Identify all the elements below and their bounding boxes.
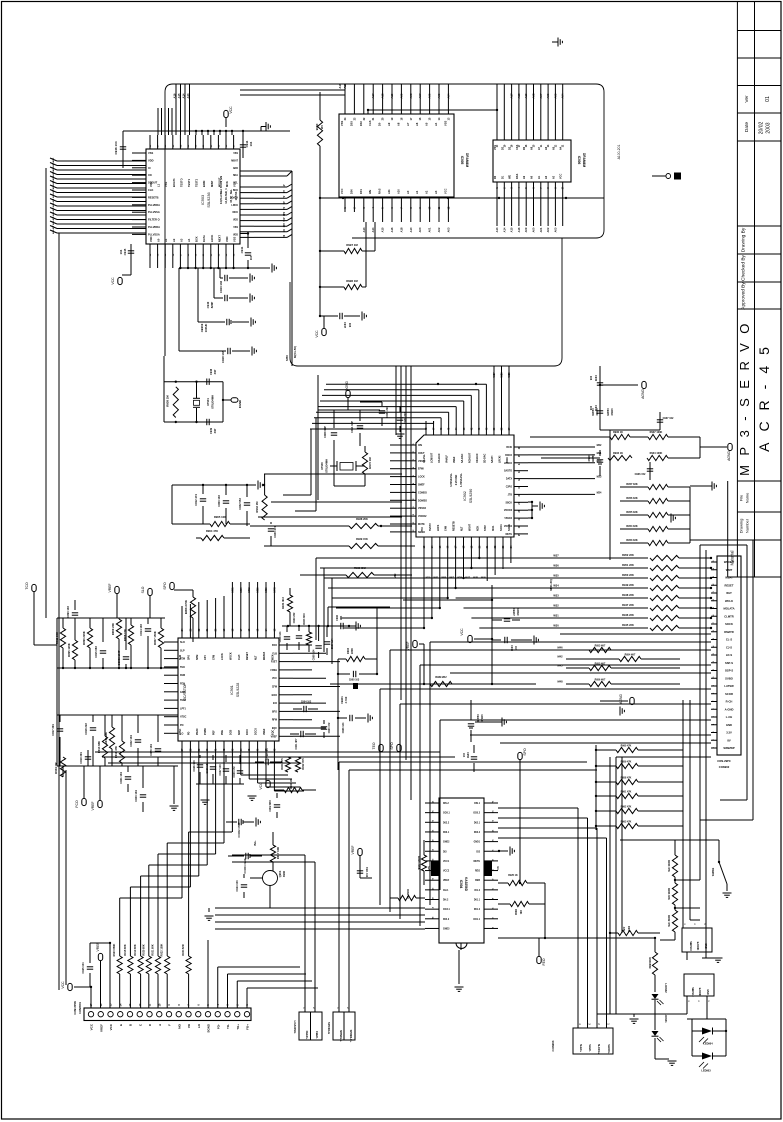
svg-text:MDATA: MDATA xyxy=(263,651,266,660)
svg-text:VDD: VDD xyxy=(233,233,238,236)
svg-text:C927 103: C927 103 xyxy=(218,764,222,776)
svg-text:VCC: VCC xyxy=(460,628,464,636)
svg-text:R940: R940 xyxy=(627,926,630,933)
svg-text:SPO: SPO xyxy=(390,742,394,750)
svg-text:W37: W37 xyxy=(553,554,559,558)
svg-text:VREF: VREF xyxy=(263,728,266,735)
svg-text:OO1.1: OO1.1 xyxy=(473,919,480,921)
svg-text:D04.2: D04.2 xyxy=(443,918,450,921)
svg-text:R947 22K: R947 22K xyxy=(622,603,634,607)
svg-text:IC904: IC904 xyxy=(459,880,463,889)
svg-text:D02.2: D02.2 xyxy=(443,822,450,824)
svg-text:SSP-S: SSP-S xyxy=(725,661,733,665)
svg-text:W01: W01 xyxy=(433,577,439,580)
svg-text:A16: A16 xyxy=(517,227,521,232)
svg-text:104: 104 xyxy=(589,376,593,381)
svg-text:C907 104: C907 104 xyxy=(331,638,334,649)
svg-text:LD-S: LD-S xyxy=(726,653,732,657)
svg-text:8V: 8V xyxy=(727,738,730,742)
svg-text:VCC: VCC xyxy=(340,188,344,194)
svg-text:CC903 104F: CC903 104F xyxy=(117,650,121,666)
svg-text:R906 270K: R906 270K xyxy=(184,600,188,614)
svg-text:CL-S: CL-S xyxy=(726,638,732,642)
svg-text:C906 104: C906 104 xyxy=(342,722,345,733)
svg-text:M48: M48 xyxy=(557,680,563,684)
svg-text:100UF: 100UF xyxy=(204,324,208,333)
svg-text:TR-: TR- xyxy=(226,1024,230,1029)
svg-text:KA9258D: KA9258D xyxy=(464,877,468,892)
svg-text:VCC: VCC xyxy=(229,106,233,114)
svg-text:104: 104 xyxy=(249,141,253,146)
svg-text:Number: Number xyxy=(745,518,750,533)
svg-text:OSP-S: OSP-S xyxy=(725,669,734,673)
svg-text:SLDRG-: SLDRG- xyxy=(607,1044,610,1054)
svg-text:C903 472: C903 472 xyxy=(328,722,331,733)
svg-text:R934 100K: R934 100K xyxy=(650,452,663,455)
svg-text:SENS10: SENS10 xyxy=(691,987,694,997)
svg-text:SCL: SCL xyxy=(233,182,238,185)
svg-text:BOAT1: BOAT1 xyxy=(172,178,176,187)
svg-text:820P: 820P xyxy=(210,302,214,309)
svg-text:D03.2: D03.2 xyxy=(474,832,481,834)
svg-text:104: 104 xyxy=(340,615,343,620)
svg-text:R918 68K: R918 68K xyxy=(124,944,127,955)
svg-text:C924 103: C924 103 xyxy=(235,880,239,892)
svg-text:R996 1M: R996 1M xyxy=(346,279,358,283)
svg-text:1.VSSA-PLL: 1.VSSA-PLL xyxy=(460,473,463,487)
svg-text:SLDRG+: SLDRG+ xyxy=(597,1044,600,1055)
svg-text:R956 4K7: R956 4K7 xyxy=(595,679,606,682)
svg-text:A02: A02 xyxy=(437,227,441,232)
svg-text:220K: 220K xyxy=(351,648,354,654)
svg-text:ISO1: ISO1 xyxy=(492,525,495,531)
svg-text:A17: A17 xyxy=(371,93,375,98)
svg-text:RESET: RESET xyxy=(246,651,249,660)
svg-text:C937 102: C937 102 xyxy=(663,417,674,420)
svg-text:VCC: VCC xyxy=(272,677,277,680)
svg-text:AD0: AD0 xyxy=(52,157,55,162)
svg-text:A3: A3 xyxy=(179,238,183,242)
svg-text:A100-201: A100-201 xyxy=(617,145,621,160)
svg-text:RFM: RFM xyxy=(272,719,277,722)
svg-text:C915 683: C915 683 xyxy=(94,646,98,658)
svg-text:R957 33K: R957 33K xyxy=(626,483,637,486)
svg-text:TEM: TEM xyxy=(180,658,185,661)
svg-text:D03.1: D03.1 xyxy=(443,832,450,834)
svg-text:GND: GND xyxy=(180,691,186,694)
svg-text:C933 474: C933 474 xyxy=(273,526,277,538)
svg-text:NEXT: NEXT xyxy=(217,235,221,242)
svg-text:AD3: AD3 xyxy=(52,171,55,176)
svg-text:MUTE: MUTE xyxy=(418,523,425,526)
svg-text:R902: R902 xyxy=(347,647,350,654)
svg-text:SUBO: SUBO xyxy=(725,676,733,680)
svg-text:MBAT: MBAT xyxy=(231,159,238,162)
svg-text:A4: A4 xyxy=(187,238,191,242)
svg-text:MCK: MCK xyxy=(225,181,229,187)
svg-text:AD2: AD2 xyxy=(52,166,55,171)
svg-text:CLVI: CLVI xyxy=(238,654,241,660)
svg-text:R924 82R: R924 82R xyxy=(182,944,185,955)
svg-text:SGND: SGND xyxy=(207,1023,211,1033)
svg-text:ATSC: ATSC xyxy=(179,728,182,735)
svg-text:IC905: IC905 xyxy=(460,156,464,165)
svg-text:XIN: XIN xyxy=(418,444,422,447)
svg-text:R933 1K: R933 1K xyxy=(613,452,623,455)
svg-text:A19: A19 xyxy=(524,93,528,98)
svg-text:CLMTR: CLMTR xyxy=(724,614,733,618)
svg-text:Drawing: Drawing xyxy=(739,519,744,534)
svg-text:BA+: BA+ xyxy=(254,840,257,846)
svg-text:A18: A18 xyxy=(517,93,521,98)
svg-text:R954 33K: R954 33K xyxy=(626,525,637,528)
svg-text:A11: A11 xyxy=(387,189,391,194)
svg-text:DMATR: DMATR xyxy=(724,630,734,634)
svg-text:VCC: VCC xyxy=(315,330,319,338)
svg-text:VHALF: VHALF xyxy=(446,454,449,463)
svg-text:DCB: DCB xyxy=(229,730,232,735)
svg-text:FSET: FSET xyxy=(271,661,278,664)
svg-text:R926 200K: R926 200K xyxy=(417,856,421,870)
svg-text:SLED-: SLED- xyxy=(588,1044,591,1052)
svg-text:R915 68K: R915 68K xyxy=(104,732,108,744)
svg-text:C950: C950 xyxy=(466,752,469,759)
svg-text:RESETB: RESETB xyxy=(453,521,456,531)
svg-text:TESTV: TESTV xyxy=(429,523,432,531)
svg-text:SPO: SPO xyxy=(523,748,527,756)
svg-text:TEST1: TEST1 xyxy=(187,178,191,187)
svg-text:C925 104: C925 104 xyxy=(81,962,85,974)
svg-text:M50: M50 xyxy=(285,355,289,361)
svg-text:FO+: FO+ xyxy=(246,1024,250,1030)
svg-text:AD7: AD7 xyxy=(52,189,55,194)
svg-text:20/02: 20/02 xyxy=(759,122,765,135)
svg-text:R995 120K: R995 120K xyxy=(67,643,71,657)
svg-text:R994: R994 xyxy=(514,909,517,915)
svg-text:VSS: VSS xyxy=(340,121,344,126)
svg-text:AD4: AD4 xyxy=(52,175,55,180)
svg-text:E: E xyxy=(119,1024,123,1026)
svg-text:4.7UF: 4.7UF xyxy=(345,696,348,703)
svg-text:XOUT: XOUT xyxy=(418,452,425,455)
svg-text:Ver: Ver xyxy=(744,95,750,103)
svg-text:C947: C947 xyxy=(343,322,347,329)
svg-text:W36: W36 xyxy=(553,564,559,568)
svg-text:LOCK: LOCK xyxy=(418,476,425,479)
svg-text:RCHOUT: RCHOUT xyxy=(468,452,471,463)
svg-text:A14: A14 xyxy=(502,227,506,232)
svg-text:2.VCONF: 2.VCONF xyxy=(455,474,458,485)
svg-text:PLLVSSA: PLLVSSA xyxy=(148,232,160,236)
svg-text:JTB: JTB xyxy=(508,494,513,496)
svg-text:OH.1: OH.1 xyxy=(443,890,449,892)
svg-text:CFM: CFM xyxy=(272,686,277,689)
svg-text:XO: XO xyxy=(148,173,152,177)
svg-text:XT901: XT901 xyxy=(206,398,210,406)
svg-text:A1: A1 xyxy=(415,190,419,194)
svg-text:DOMSO: DOMSO xyxy=(418,499,427,502)
svg-text:WE: WE xyxy=(509,175,512,179)
svg-text:WE: WE xyxy=(368,190,372,194)
svg-text:C936 152: C936 152 xyxy=(635,473,646,476)
svg-text:EOO: EOO xyxy=(272,694,277,697)
svg-text:W48: W48 xyxy=(473,577,479,580)
svg-text:C902 8P2: C902 8P2 xyxy=(268,800,272,812)
svg-text:VREF: VREF xyxy=(99,1024,103,1032)
svg-text:R923 650K: R923 650K xyxy=(113,943,116,956)
svg-text:A5: A5 xyxy=(425,122,429,126)
svg-text:A3: A3 xyxy=(434,190,438,194)
svg-text:PEF: PEF xyxy=(213,730,216,735)
svg-text:CON902: CON902 xyxy=(719,765,730,769)
svg-text:CON-29PC: CON-29PC xyxy=(717,759,731,763)
svg-text:C949: C949 xyxy=(510,645,513,652)
svg-text:C945: C945 xyxy=(123,248,127,255)
svg-text:RAS: RAS xyxy=(378,188,382,194)
svg-text:C910 104: C910 104 xyxy=(279,631,282,642)
svg-text:R954 4K7: R954 4K7 xyxy=(625,654,636,657)
svg-text:R942 47K: R942 47K xyxy=(667,915,671,927)
svg-text:EQC: EQC xyxy=(272,727,277,730)
svg-text:VCC: VCC xyxy=(111,277,115,285)
svg-text:R907 150K: R907 150K xyxy=(153,631,157,645)
svg-text:A4: A4 xyxy=(434,122,438,126)
svg-text:A6: A6 xyxy=(415,122,419,126)
svg-text:R936 1K: R936 1K xyxy=(613,431,623,434)
svg-text:DATA: DATA xyxy=(202,235,206,242)
svg-text:VDD: VDD xyxy=(225,236,229,242)
svg-text:A10: A10 xyxy=(409,227,413,232)
svg-text:W30: W30 xyxy=(553,624,559,628)
svg-text:R944 47K: R944 47K xyxy=(667,860,671,872)
svg-text:OO5.1: OO5.1 xyxy=(443,813,450,815)
svg-text:TESTO: TESTO xyxy=(179,178,183,187)
svg-text:R919 68K: R919 68K xyxy=(134,944,137,955)
svg-text:M24: M24 xyxy=(597,491,602,494)
svg-text:C948 103: C948 103 xyxy=(221,350,225,363)
svg-text:W47: W47 xyxy=(465,577,471,580)
svg-text:R953 4K7: R953 4K7 xyxy=(595,645,606,648)
svg-text:A11: A11 xyxy=(282,218,285,223)
svg-text:M23: M23 xyxy=(597,476,602,479)
svg-text:A9: A9 xyxy=(387,122,391,126)
svg-text:GND1: GND1 xyxy=(474,842,481,844)
svg-text:WLT: WLT xyxy=(726,591,732,595)
svg-text:SDA: SDA xyxy=(233,174,238,177)
svg-text:VSS: VSS xyxy=(443,121,447,126)
svg-text:SPM: SPM xyxy=(196,655,199,660)
svg-text:SOCK: SOCK xyxy=(725,622,733,626)
svg-text:R903 3K9: R903 3K9 xyxy=(303,613,306,625)
svg-text:G2: G2 xyxy=(427,866,431,870)
svg-text:LRCK: LRCK xyxy=(231,204,238,207)
svg-text:A06: A06 xyxy=(546,93,550,98)
svg-text:SLO: SLO xyxy=(180,641,185,644)
svg-text:FEO: FEO xyxy=(542,958,546,965)
svg-text:M19: M19 xyxy=(426,577,431,580)
svg-text:FEED+: FEED+ xyxy=(305,1031,309,1040)
svg-text:FLB: FLB xyxy=(272,652,277,655)
svg-text:C990: C990 xyxy=(336,614,339,621)
svg-text:A2: A2 xyxy=(425,190,429,194)
svg-text:R932 1M: R932 1M xyxy=(255,501,259,513)
svg-text:MP3-SERVO: MP3-SERVO xyxy=(737,314,752,476)
svg-text:VSS: VSS xyxy=(233,237,237,242)
svg-text:LCMOUT: LCMOUT xyxy=(431,452,434,463)
svg-text:2003: 2003 xyxy=(766,122,772,133)
svg-text:WCLK: WCLK xyxy=(725,599,733,603)
svg-text:OD-DAC: OD-DAC xyxy=(476,453,479,463)
svg-text:VCC: VCC xyxy=(443,188,447,194)
svg-text:M(01-50): M(01-50) xyxy=(293,346,297,358)
svg-text:VSS: VSS xyxy=(164,182,168,187)
svg-text:RAS: RAS xyxy=(516,173,519,179)
svg-text:AGND: AGND xyxy=(619,694,623,704)
svg-text:ASY: ASY xyxy=(204,655,207,660)
svg-text:R943 10K: R943 10K xyxy=(667,888,671,900)
svg-text:R931 3K3: R931 3K3 xyxy=(281,597,285,609)
svg-text:A09: A09 xyxy=(399,93,403,98)
svg-text:VDD: VDD xyxy=(148,158,154,162)
svg-text:DGND: DGND xyxy=(238,400,242,408)
svg-text:VREF: VREF xyxy=(351,845,355,854)
svg-text:C4M: C4M xyxy=(445,526,448,531)
svg-text:104: 104 xyxy=(514,646,517,651)
svg-text:A10: A10 xyxy=(338,83,342,89)
svg-text:GND3: GND3 xyxy=(443,928,450,930)
svg-text:C939: C939 xyxy=(209,427,213,434)
svg-text:CE909: CE909 xyxy=(591,408,594,416)
svg-text:VSS: VSS xyxy=(233,226,238,229)
svg-text:R-CH: R-CH xyxy=(726,700,733,704)
svg-text:R901 7K5: R901 7K5 xyxy=(281,758,284,770)
svg-text:W35: W35 xyxy=(457,577,463,580)
svg-text:D02.1: D02.1 xyxy=(474,822,481,824)
svg-text:VREF: VREF xyxy=(406,641,410,650)
svg-text:100UF: 100UF xyxy=(516,608,519,616)
svg-text:C943 102: C943 102 xyxy=(219,280,223,293)
svg-text:C946 104: C946 104 xyxy=(114,141,118,154)
svg-text:FOO: FOO xyxy=(272,644,277,647)
svg-text:MUTE: MUTE xyxy=(505,534,512,536)
svg-text:C901 4P7: C901 4P7 xyxy=(295,738,298,750)
svg-text:EFMI: EFMI xyxy=(418,468,424,471)
svg-text:SADTO: SADTO xyxy=(504,470,512,473)
svg-text:R929 15K: R929 15K xyxy=(356,537,368,541)
svg-text:DH.2: DH.2 xyxy=(443,900,449,902)
svg-text:VCC: VCC xyxy=(560,174,563,179)
svg-text:TEO: TEO xyxy=(180,666,185,669)
svg-text:VREF: VREF xyxy=(108,583,112,592)
svg-text:ATSC: ATSC xyxy=(180,716,187,719)
svg-text:MUTE: MUTE xyxy=(473,861,480,863)
svg-text:LCD901: LCD901 xyxy=(664,1013,667,1023)
svg-text:VSS: VSS xyxy=(233,152,238,155)
svg-text:W33: W33 xyxy=(553,594,559,598)
svg-text:3906: 3906 xyxy=(282,870,286,877)
svg-text:D02: D02 xyxy=(359,121,363,126)
svg-text:W27: W27 xyxy=(493,372,496,378)
svg-text:SMEF: SMEF xyxy=(418,484,425,487)
svg-text:A18: A18 xyxy=(381,93,385,98)
svg-text:A15: A15 xyxy=(381,227,385,232)
svg-text:3.VSSD-PLL: 3.VSSD-PLL xyxy=(450,473,453,487)
svg-text:FEED-: FEED- xyxy=(315,1031,319,1039)
svg-text:DI1.2: DI1.2 xyxy=(475,890,481,892)
svg-text:LPF1: LPF1 xyxy=(180,707,187,710)
svg-text:LRCKO: LRCKO xyxy=(504,463,512,465)
svg-text:W26: W26 xyxy=(501,372,504,378)
svg-text:W32: W32 xyxy=(553,604,559,608)
svg-text:A01: A01 xyxy=(539,227,543,232)
svg-text:C930 222: C930 222 xyxy=(403,412,407,424)
svg-text:R925 1K: R925 1K xyxy=(508,874,518,877)
svg-text:XI: XI xyxy=(148,166,151,170)
svg-text:PD: PD xyxy=(187,731,190,735)
svg-text:AGND: AGND xyxy=(727,451,731,461)
svg-text:R993 10: R993 10 xyxy=(406,889,409,899)
svg-text:A19: A19 xyxy=(390,93,394,98)
svg-text:DRAM4M: DRAM4M xyxy=(465,153,469,167)
svg-text:TEIO: TEIO xyxy=(180,699,186,702)
svg-text:VSS: VSS xyxy=(148,151,153,155)
svg-text:R970 1M: R970 1M xyxy=(368,457,372,469)
svg-text:ACR-45: ACR-45 xyxy=(756,336,772,452)
svg-text:OO4.1: OO4.1 xyxy=(443,908,450,911)
svg-text:FEM: FEM xyxy=(180,674,185,677)
svg-text:C923 104: C923 104 xyxy=(134,790,138,802)
svg-text:A05: A05 xyxy=(553,93,557,98)
svg-text:CE908: CE908 xyxy=(591,454,594,462)
svg-text:VCC: VCC xyxy=(61,981,65,989)
svg-text:DIS.1: DIS.1 xyxy=(474,803,480,805)
svg-text:A07: A07 xyxy=(539,93,543,98)
svg-text:REB: REB xyxy=(475,880,480,882)
svg-text:LOADING: LOADING xyxy=(293,1021,297,1034)
svg-text:PDAC: PDAC xyxy=(196,728,199,735)
svg-text:FO-: FO- xyxy=(216,1024,220,1029)
svg-text:R989 2R2: R989 2R2 xyxy=(435,676,447,679)
svg-text:CJ-S: CJ-S xyxy=(726,645,732,649)
svg-text:SPINDLE-: SPINDLE- xyxy=(339,1030,343,1042)
svg-text:DATX: DATX xyxy=(506,478,513,481)
svg-text:100UF: 100UF xyxy=(595,408,598,416)
svg-text:AD6: AD6 xyxy=(52,184,55,189)
svg-text:W35: W35 xyxy=(553,574,559,578)
svg-text:SPINDLE+: SPINDLE+ xyxy=(349,1030,353,1043)
svg-text:A02: A02 xyxy=(546,227,550,232)
svg-text:CC902 47UF: CC902 47UF xyxy=(237,822,241,838)
svg-text:A10: A10 xyxy=(396,189,400,194)
svg-text:R992 7K5: R992 7K5 xyxy=(302,758,305,770)
svg-text:IC902: IC902 xyxy=(463,491,467,501)
svg-text:D01: D01 xyxy=(359,189,363,194)
svg-text:VREF: VREF xyxy=(91,801,95,810)
svg-text:C935: C935 xyxy=(594,375,598,382)
svg-text:M36: M36 xyxy=(264,587,268,593)
svg-text:D0: D0 xyxy=(378,122,382,126)
svg-text:R945 22K: R945 22K xyxy=(622,623,634,627)
svg-text:LATSW: LATSW xyxy=(724,684,734,688)
svg-text:MO: MO xyxy=(177,1023,181,1028)
svg-text:SOOUT: SOOUT xyxy=(148,181,158,185)
svg-text:SLED+: SLED+ xyxy=(579,1044,582,1053)
svg-text:SPINDLE: SPINDLE xyxy=(327,1022,331,1034)
svg-text:VCC: VCC xyxy=(90,1023,94,1030)
svg-text:STAT: STAT xyxy=(484,525,487,531)
svg-text:SOO1: SOO1 xyxy=(500,524,503,531)
svg-text:Name: Name xyxy=(745,492,750,503)
